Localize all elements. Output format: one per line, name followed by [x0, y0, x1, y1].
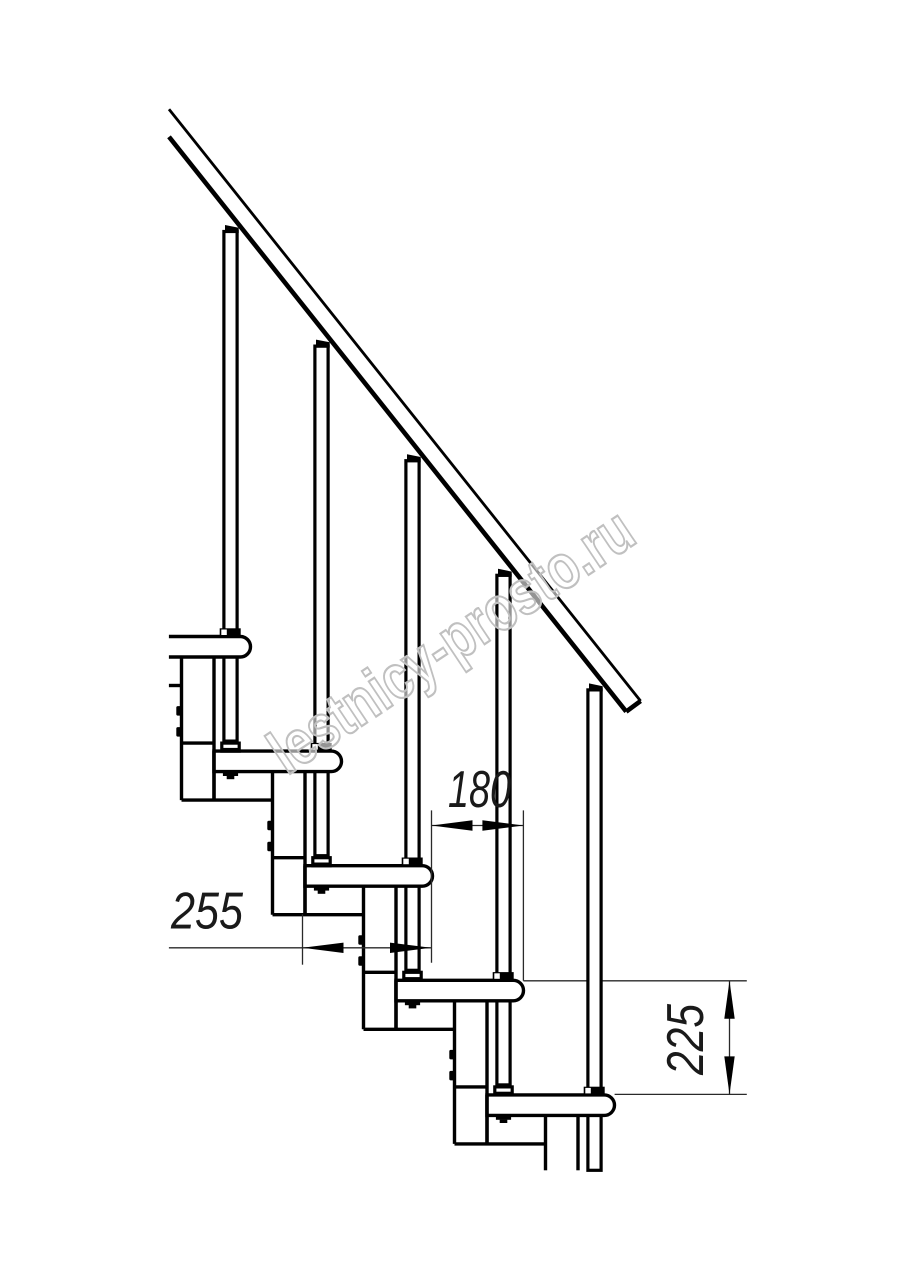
svg-text:180: 180	[448, 761, 511, 819]
svg-text:225: 225	[657, 1003, 715, 1076]
svg-text:255: 255	[170, 883, 244, 941]
